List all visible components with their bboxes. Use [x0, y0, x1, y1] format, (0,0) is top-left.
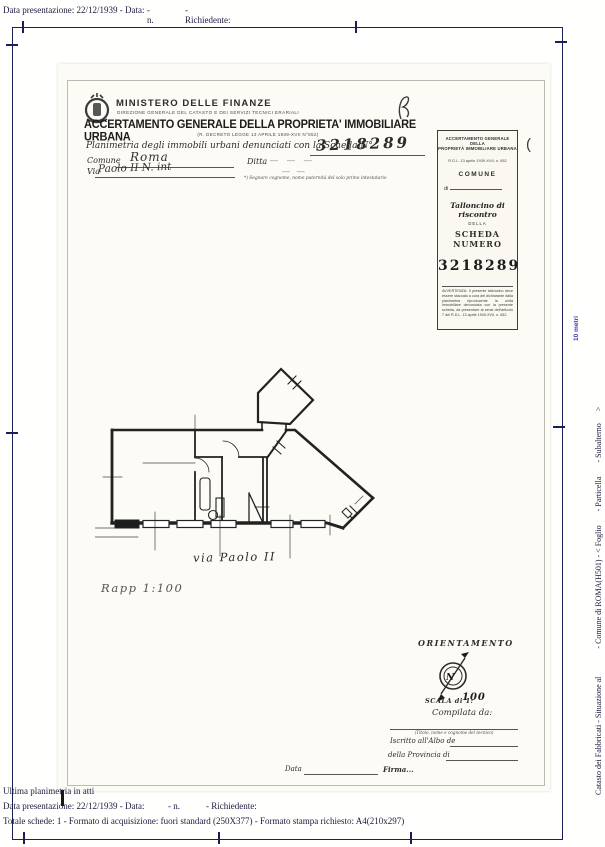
albo-label: Iscritto all'Albo de	[390, 737, 455, 745]
talloncino-header-1: ACCERTAMENTO GENERALE DELLA	[438, 136, 517, 146]
talloncino-law: R.D.L. 13 aprile 1939-XVII, n. 652	[438, 158, 517, 163]
talloncino-della: DELLA	[438, 221, 517, 226]
scanned-document: MINISTERO DELLE FINANZE DIREZIONE GENERA…	[58, 64, 550, 791]
bottom-n-label: - n.	[168, 801, 180, 811]
firma-label: Firma...	[383, 765, 414, 774]
frame-tick	[6, 44, 18, 46]
paren-mark: (	[526, 136, 531, 153]
side-reference-line-1: Catasto dei Fabbricati - Situazione al -…	[593, 285, 605, 795]
frame-tick	[218, 832, 220, 844]
albo-line	[450, 745, 518, 747]
talloncino-comune: COMUNE	[438, 171, 517, 178]
talloncino-avvertenza: AVVERTENZA: Il presente talloncino deve …	[442, 289, 513, 318]
direction-subtitle: DIREZIONE GENERALE DEL CATASTO E DEI SER…	[117, 110, 417, 115]
talloncino-title: Talloncino di riscontro	[438, 201, 517, 219]
scheda-number-handwritten: 3218289	[316, 133, 411, 154]
floor-plan-drawing	[95, 360, 405, 575]
totale-schede-line: Totale schede: 1 - Formato di acquisizio…	[3, 816, 433, 826]
data-label: Data	[285, 765, 302, 773]
talloncino-di-label: di	[444, 186, 448, 192]
talloncino-number: 3218289	[438, 258, 517, 274]
talloncino-divider	[442, 286, 513, 287]
plan-scale-note: Rapp 1:100	[101, 581, 183, 595]
top-richiedente-label: - Richiedente:	[185, 5, 230, 25]
ultima-planimetria-note: Ultima planimetria in atti	[3, 786, 94, 796]
side-cadastral-reference: Catasto dei Fabbricati - Situazione al -…	[568, 285, 605, 795]
footnote: *) Segnare cognome, nome paternità del s…	[244, 176, 444, 181]
via-underline	[95, 176, 235, 178]
side-scale-note: 10 metri	[573, 316, 580, 341]
bottom-data-presentazione: Data presentazione: 22/12/1939 - Data:	[3, 801, 223, 811]
frame-tick	[22, 21, 24, 33]
ditta-label: Ditta	[247, 157, 267, 166]
bottom-richiedente-label: - Richiedente:	[206, 801, 257, 811]
ministry-title: MINISTERO DELLE FINANZE	[116, 98, 346, 109]
street-label: via Paolo II	[193, 549, 276, 564]
frame-tick	[355, 21, 357, 33]
provincia-label: della Provincia di	[388, 751, 450, 759]
north-letter: N	[445, 673, 455, 683]
frame-tick	[6, 432, 18, 434]
talloncino-scheda-numero: SCHEDA NUMERO	[438, 229, 517, 249]
data-line	[304, 773, 378, 775]
frame-tick	[553, 426, 565, 428]
orientamento-title: ORIENTAMENTO	[418, 638, 514, 648]
frame-tick	[555, 41, 567, 43]
tecnico-note: (Titolo, nome e cognome del tecnico)	[390, 730, 518, 735]
frame-tick	[23, 832, 25, 844]
planimetria-viewer-page: Data presentazione: 22/12/1939 - Data: -…	[0, 0, 605, 847]
top-n-label: - n.	[147, 5, 154, 25]
handwritten-flourish	[396, 95, 414, 121]
talloncino-header-2: PROPRIETÀ IMMOBILIARE URBANA	[438, 146, 517, 151]
scheda-underline	[310, 154, 425, 156]
provincia-line	[446, 759, 518, 761]
ditta-dashes: — — —	[270, 156, 312, 165]
talloncino-di-row: di	[438, 184, 517, 192]
talloncino-di-line	[450, 184, 502, 190]
scala-value-handwritten: 100	[462, 692, 486, 703]
compilata-label: Compilata da:	[432, 708, 492, 718]
via-value-handwritten: Paolo II N. int	[98, 161, 172, 176]
talloncino-box: ACCERTAMENTO GENERALE DELLA PROPRIETÀ IM…	[437, 130, 518, 330]
ditta-dashes-2: — —	[282, 167, 305, 176]
frame-tick	[410, 832, 412, 844]
